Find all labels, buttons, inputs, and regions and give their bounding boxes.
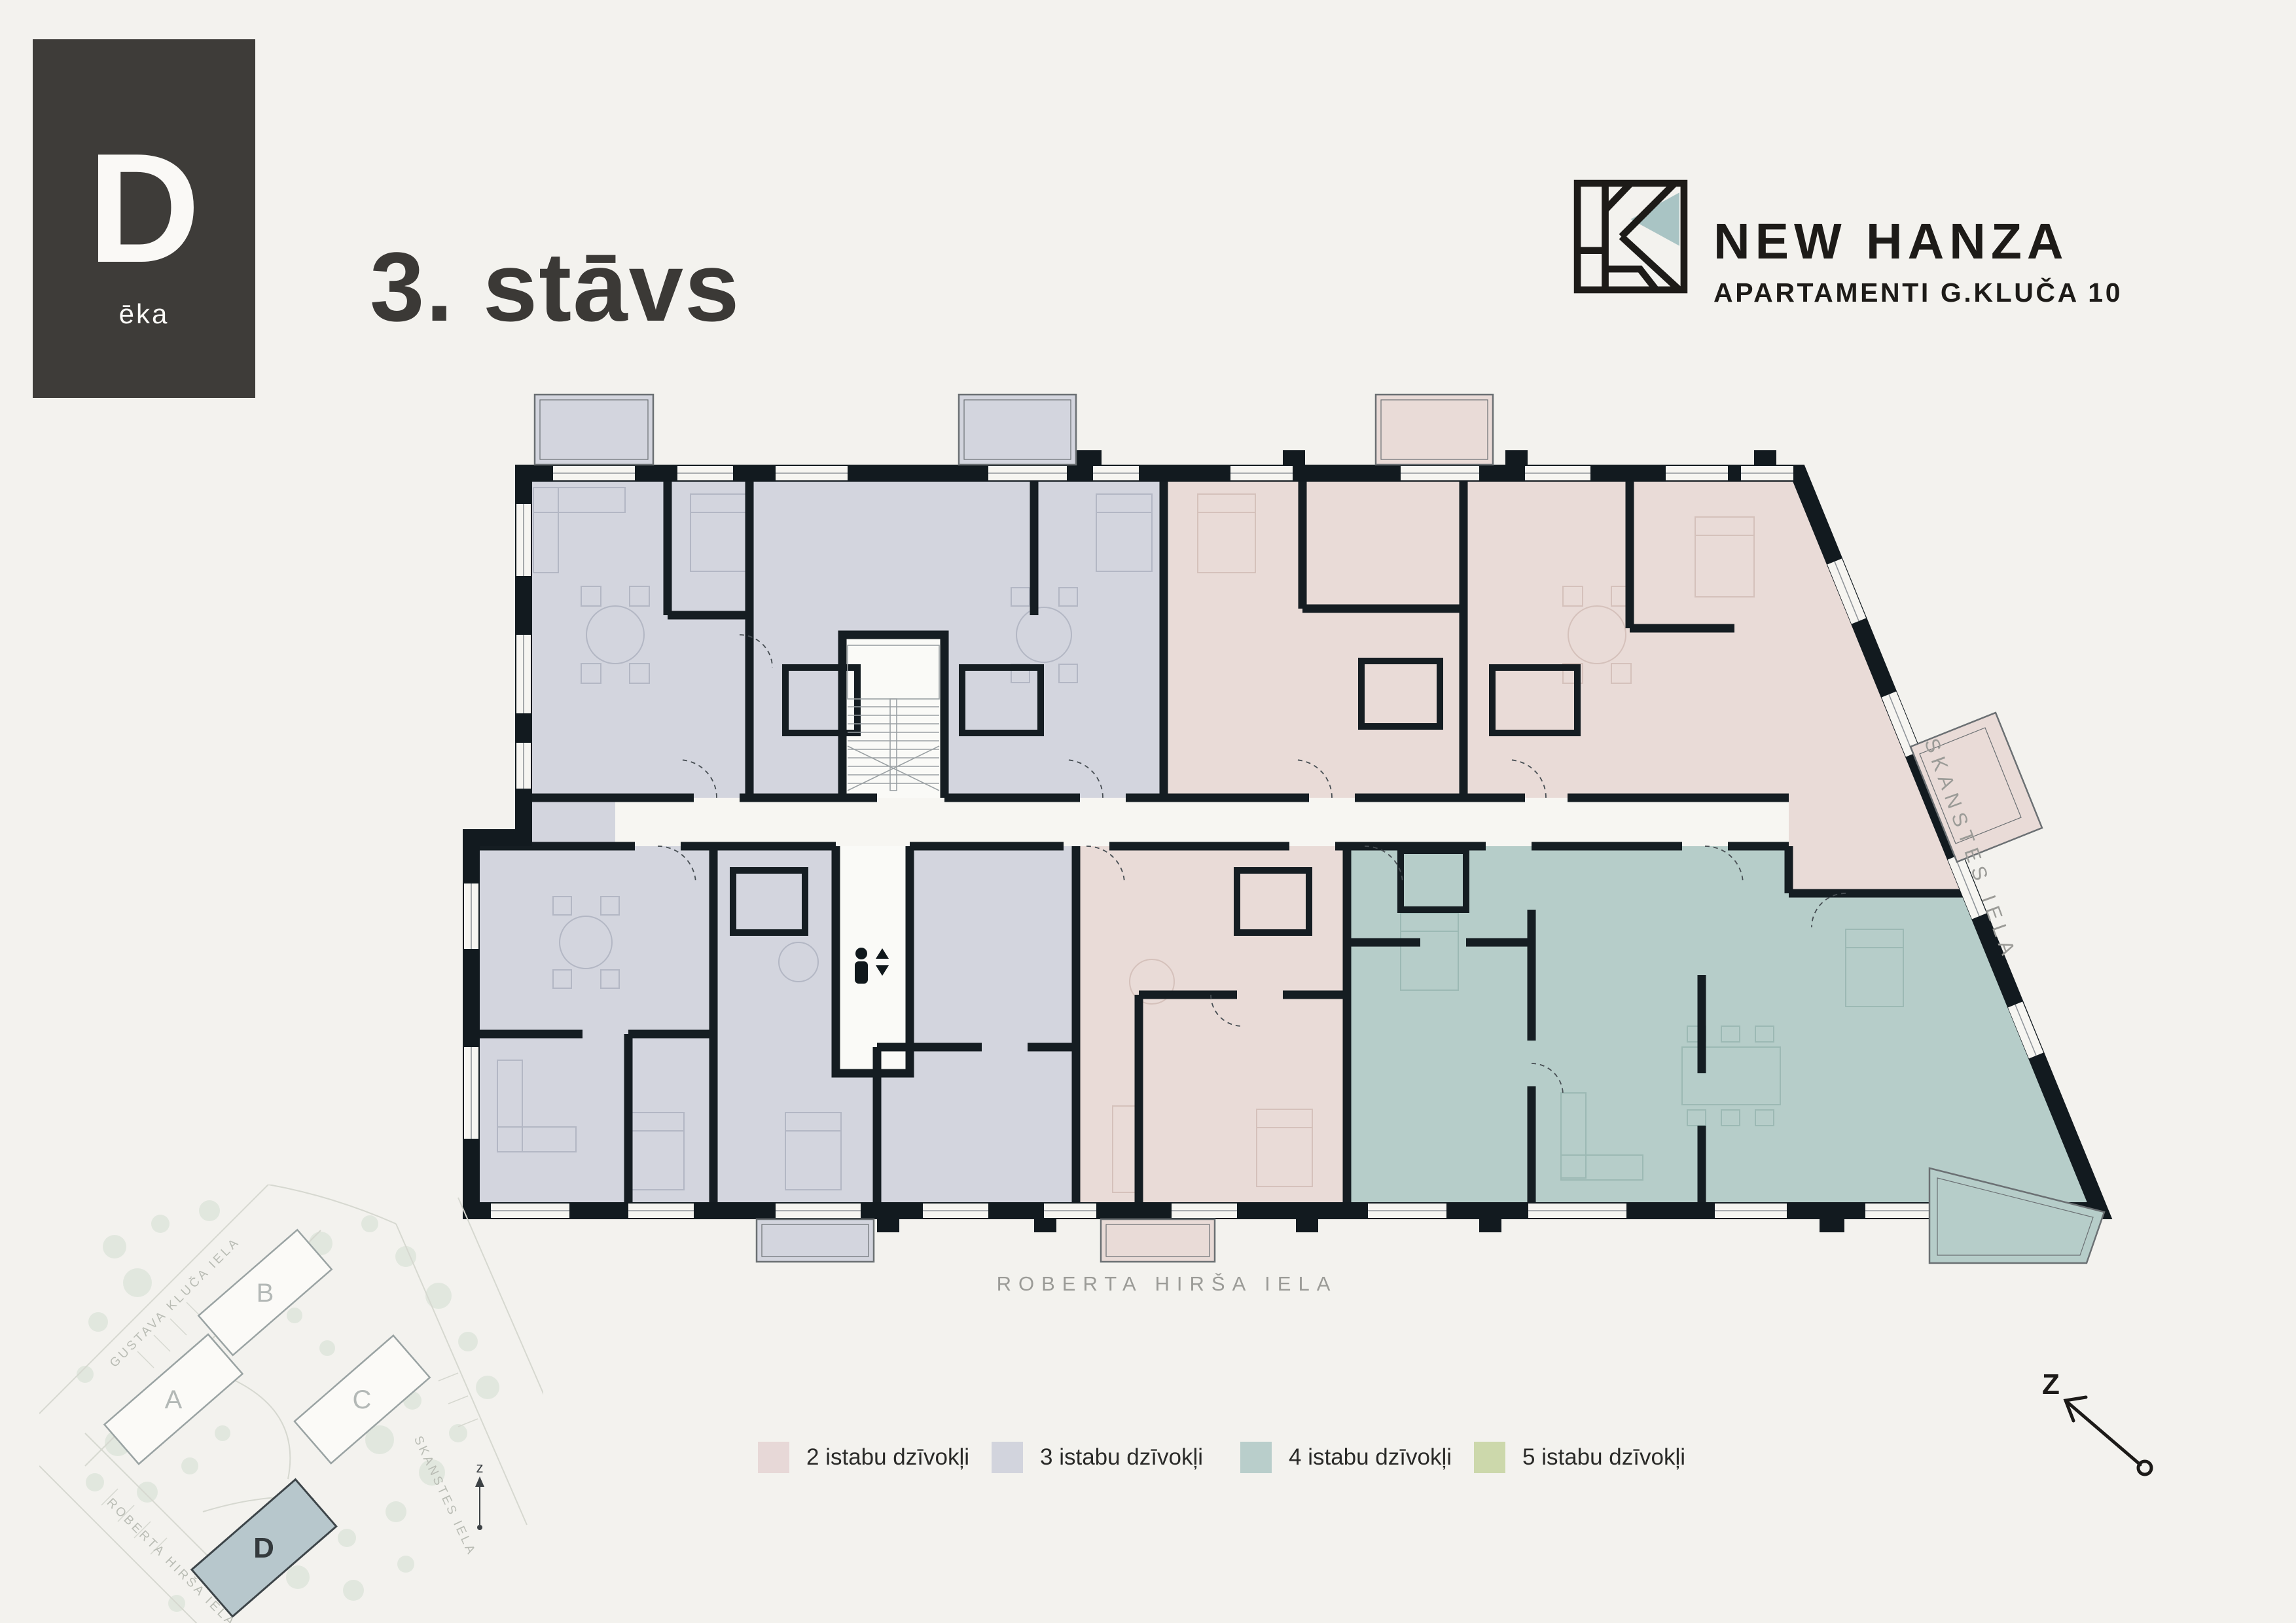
legend-swatch-2-room (758, 1442, 789, 1473)
legend-item-2-room: 2 istabu dzīvokļi (758, 1442, 969, 1473)
site-north-label: z (476, 1459, 484, 1476)
site-building-c-label: C (353, 1385, 372, 1414)
brand-title: NEW HANZA (1713, 217, 2123, 267)
legend-label-3-room: 3 istabu dzīvokļi (1040, 1444, 1203, 1471)
north-arrow-icon: Z (2016, 1358, 2166, 1482)
site-street-skanstes: SKANSTES IELA (411, 1434, 478, 1558)
legend-label-4-room: 4 istabu dzīvokļi (1289, 1444, 1452, 1471)
building-sublabel: ēka (119, 298, 170, 330)
legend-item-3-room: 3 istabu dzīvokļi (992, 1442, 1203, 1473)
legend-item-4-room: 4 istabu dzīvokļi (1240, 1442, 1452, 1473)
street-label-roberta-hirsa: ROBERTA HIRŠA IELA (997, 1272, 1338, 1295)
legend-item-5-room: 5 istabu dzīvokļi (1474, 1442, 1685, 1473)
floor-plan: ROBERTA HIRŠA IELA SKANSTES IELA (419, 353, 2160, 1315)
site-buildings: A B C D (105, 1230, 430, 1616)
brand-subtitle: APARTAMENTI G.KLUČA 10 (1713, 277, 2123, 308)
legend-swatch-3-room (992, 1442, 1023, 1473)
site-map: A B C D GUSTAVA KLUČA IELA ROBERTA HIRŠA… (39, 1185, 543, 1623)
floorplan-poster: D ēka 3. stāvs NEW HANZA APARTAMENTI G.K… (0, 0, 2296, 1623)
site-building-d-label: D (253, 1532, 274, 1564)
building-letter: D (88, 131, 200, 287)
elevator-shaft (836, 846, 910, 1073)
legend-swatch-5-room (1474, 1442, 1505, 1473)
page-title: 3. stāvs (370, 230, 740, 344)
building-badge: D ēka (33, 39, 255, 398)
legend-swatch-4-room (1240, 1442, 1272, 1473)
site-building-a-label: A (165, 1385, 183, 1414)
site-north-arrow-icon (475, 1476, 484, 1530)
new-hanza-logo-icon (1573, 179, 1689, 294)
corridor (615, 798, 1789, 846)
legend-label-2-room: 2 istabu dzīvokļi (806, 1444, 969, 1471)
brand-block: NEW HANZA APARTAMENTI G.KLUČA 10 (1573, 179, 2123, 308)
site-building-b-label: B (257, 1279, 274, 1308)
legend-label-5-room: 5 istabu dzīvokļi (1522, 1444, 1685, 1471)
compass-north-label: Z (2042, 1368, 2060, 1400)
